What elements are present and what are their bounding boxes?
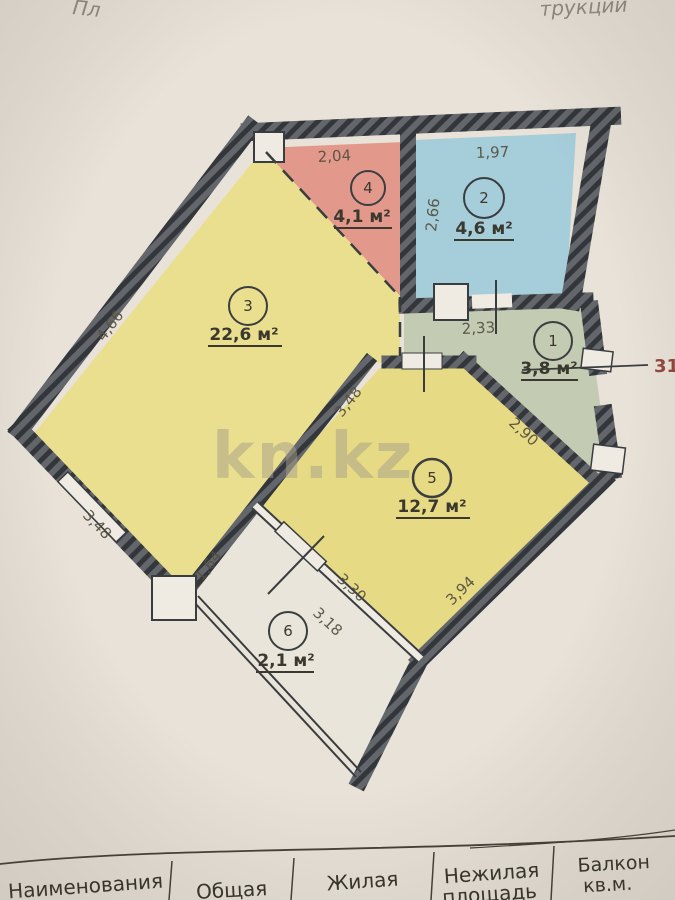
room-6-area-label: 2,1 м² (257, 651, 314, 671)
dim-room4-top: 2,04 (317, 146, 351, 166)
room-2-area-label: 4,6 м² (455, 219, 512, 239)
floor-plan-canvas: Пл трукции (0, 0, 675, 900)
apartment-number: 31 (654, 356, 675, 377)
watermark: kn.kz (212, 420, 414, 494)
table-header-living: Жилая (326, 867, 399, 896)
room-5-area-label: 12,7 м² (397, 497, 466, 517)
column-room1-top (434, 284, 468, 320)
opening-room5-door (402, 353, 442, 369)
room-4-number: 4 (363, 179, 373, 197)
dim-room1-top: 2,33 (461, 318, 495, 338)
room-2-number: 2 (479, 189, 489, 207)
room-5-number: 5 (427, 469, 437, 487)
room-3-number: 3 (243, 297, 253, 315)
room-3-area-label: 22,6 м² (209, 325, 278, 345)
room-1-area-label: 3,8 м² (520, 359, 577, 379)
room-1-number: 1 (548, 332, 558, 350)
dim-room2-top: 1,97 (476, 143, 510, 162)
room-6-number: 6 (283, 622, 293, 640)
opening-room2-room1 (472, 293, 512, 308)
room-4-area-label: 4,1 м² (333, 207, 390, 227)
table-header-total: Общая (195, 876, 267, 900)
entry-door-jamb-lower (591, 444, 626, 474)
top-left-annotation: Пл (71, 0, 101, 22)
dim-room2-left: 2,66 (422, 197, 443, 232)
column-balcony (152, 576, 196, 620)
table-header-balcony-2: кв.м. (583, 873, 633, 898)
column-top-left (254, 132, 284, 162)
